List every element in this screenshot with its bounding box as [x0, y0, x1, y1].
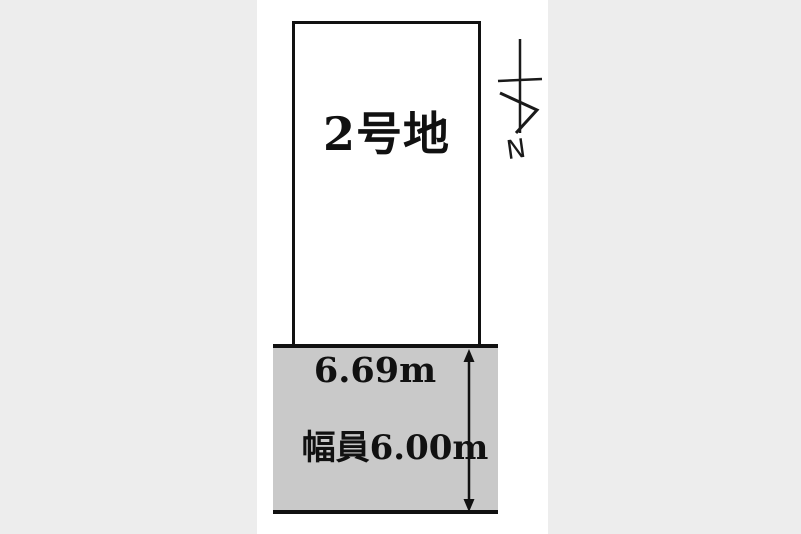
plot-label: 2号地 [295, 108, 478, 160]
north-label: N [504, 134, 527, 166]
road-width-arrow-icon [459, 348, 479, 513]
plot-outline: 2号地 [292, 21, 481, 344]
frontage-measurement-label: 6.69m [314, 350, 436, 391]
north-arrow-icon: N [494, 34, 548, 166]
land-plot-diagram: { "diagram": { "plot_label": "2号地", "fro… [0, 0, 801, 534]
